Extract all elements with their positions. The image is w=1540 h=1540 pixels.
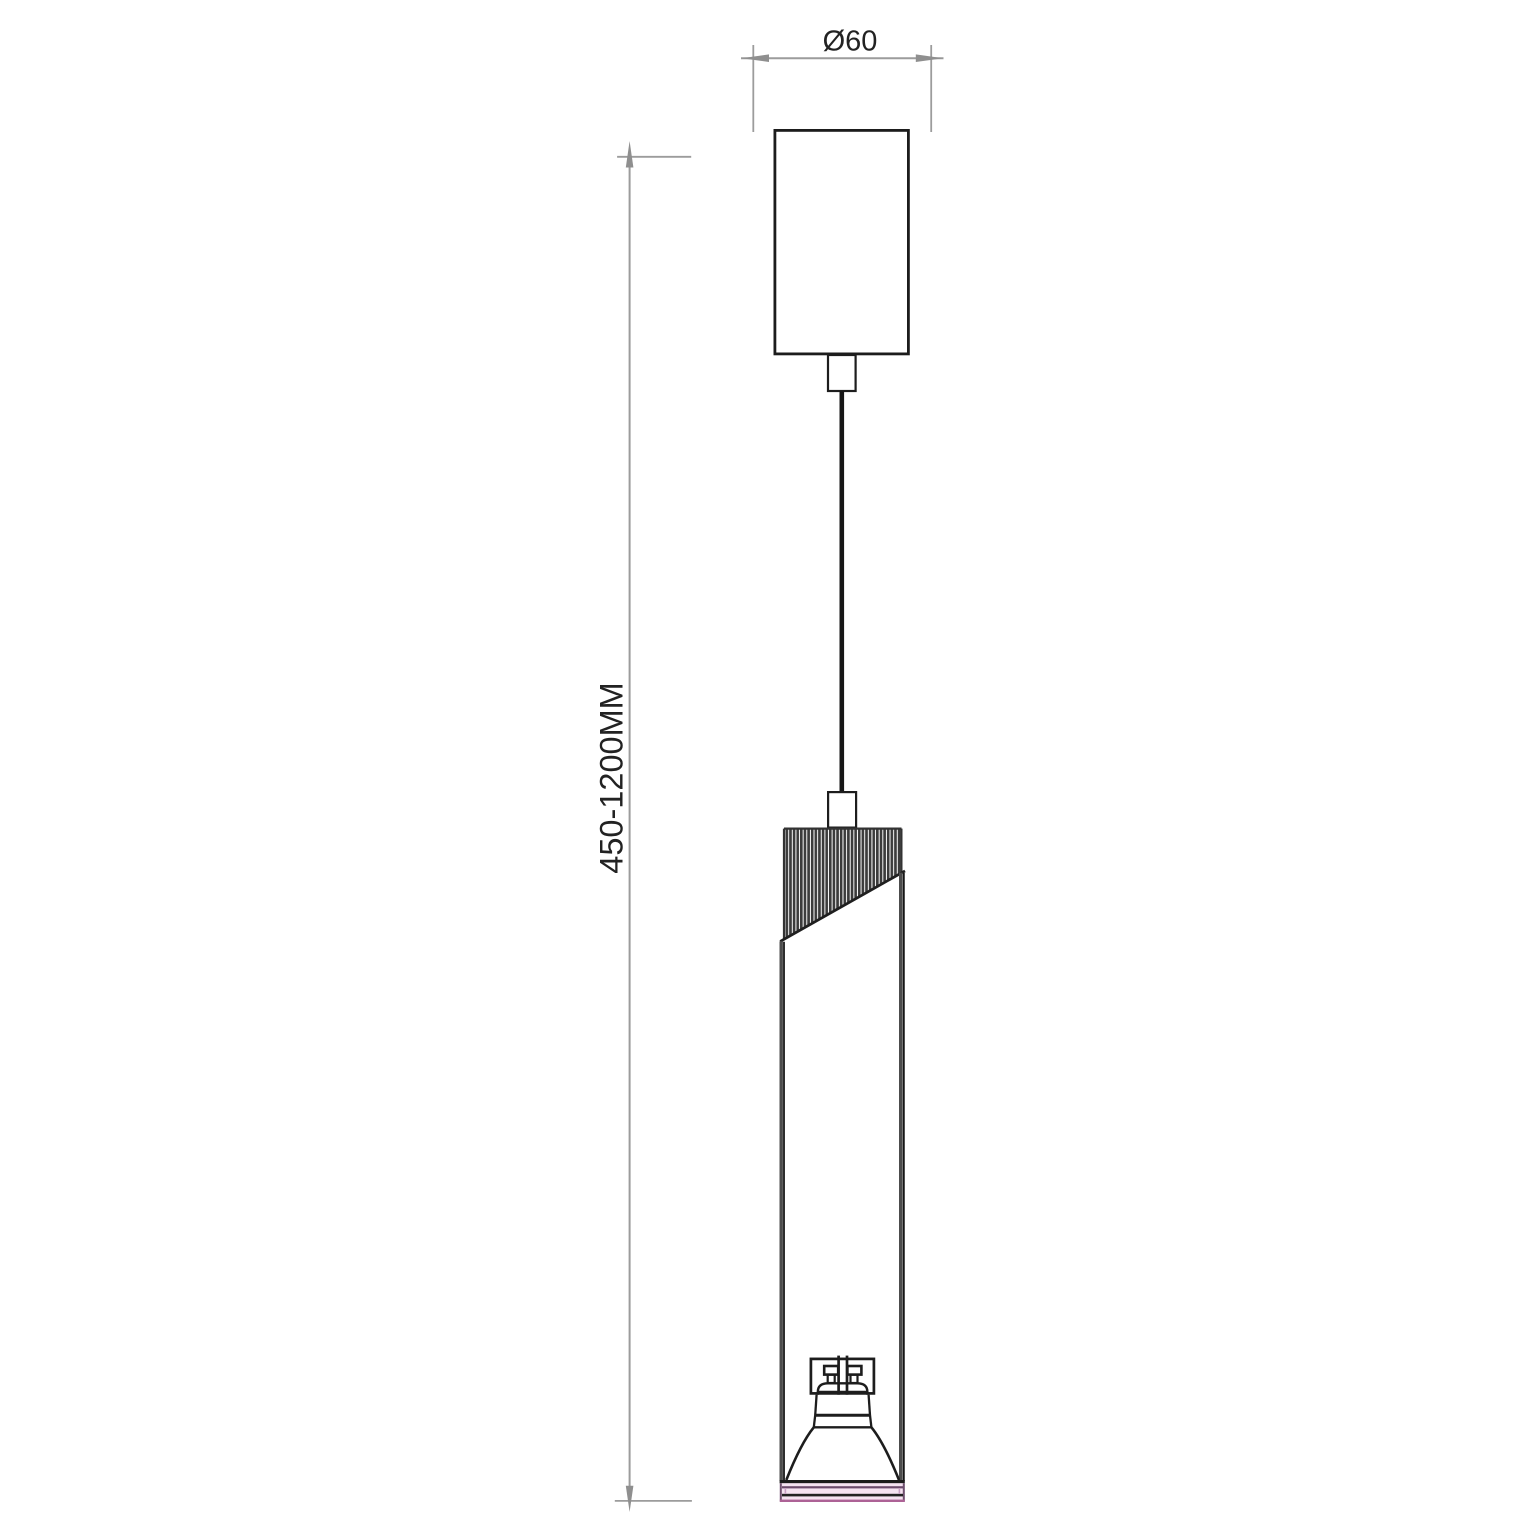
svg-text:Ø60: Ø60	[823, 25, 878, 57]
svg-text:450-1200MM: 450-1200MM	[594, 682, 630, 874]
